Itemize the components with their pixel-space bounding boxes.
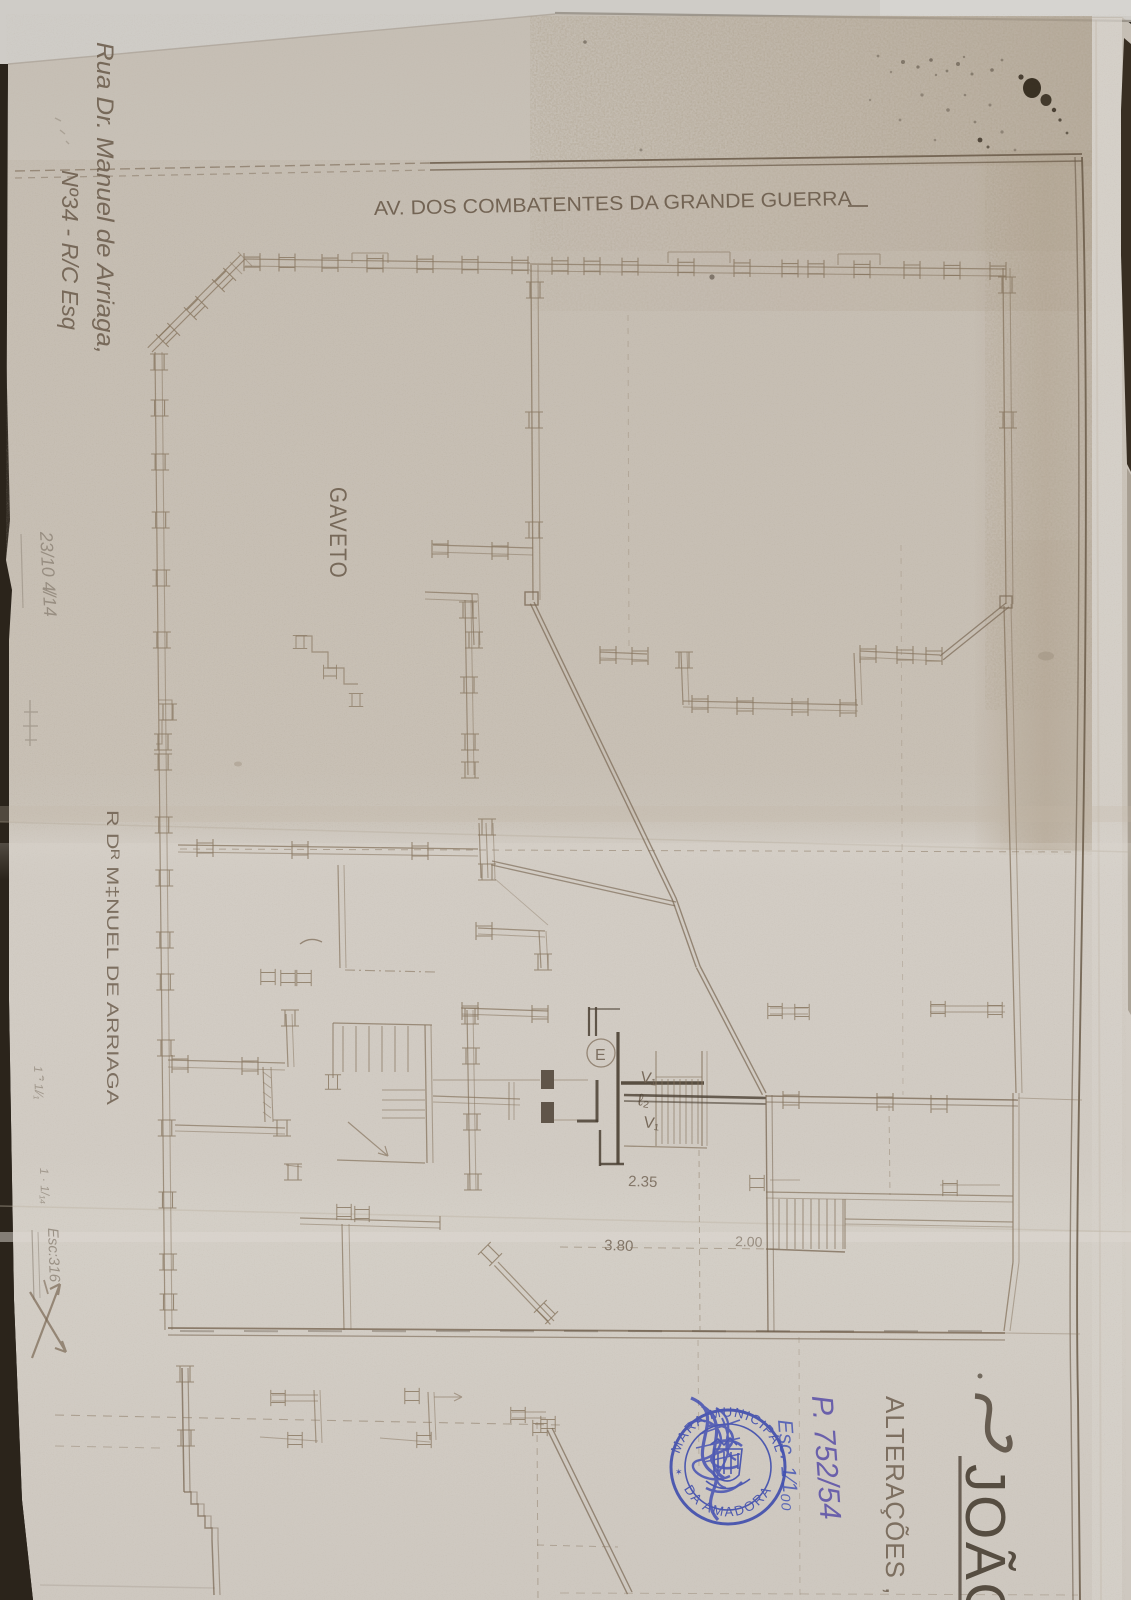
- svg-text:Nº34 - R/C Esq: Nº34 - R/C Esq: [57, 170, 83, 330]
- svg-text:R Dᴿ M‡NUEL DE ARRIAGA: R Dᴿ M‡NUEL DE ARRIAGA: [103, 810, 122, 1106]
- svg-text:Rua Dr. Manuel de Arriaga,: Rua Dr. Manuel de Arriaga,: [91, 42, 118, 354]
- svg-text:GAVETO: GAVETO: [324, 487, 351, 579]
- svg-text:E: E: [595, 1047, 606, 1064]
- svg-text:Esc:316: Esc:316: [44, 1228, 63, 1283]
- svg-text:✶: ✶: [675, 1467, 683, 1477]
- svg-text:1 ·ิ 1/⁄₁: 1 ·ิ 1/⁄₁: [31, 1066, 46, 1100]
- svg-text:1 · 1/₁₄: 1 · 1/₁₄: [37, 1168, 52, 1205]
- svg-text:V₁: V₁: [639, 1069, 657, 1088]
- svg-text:3.80: 3.80: [604, 1237, 634, 1255]
- svg-text:JOÃO RI(: JOÃO RI(: [953, 1464, 1017, 1600]
- svg-text:V₁: V₁: [642, 1114, 660, 1133]
- svg-text:2.00: 2.00: [735, 1233, 763, 1250]
- svg-text:2.35: 2.35: [628, 1173, 658, 1191]
- svg-text:ℓ₂: ℓ₂: [635, 1090, 651, 1111]
- svg-text:ALTERAÇÕES ,: ALTERAÇÕES ,: [880, 1396, 910, 1595]
